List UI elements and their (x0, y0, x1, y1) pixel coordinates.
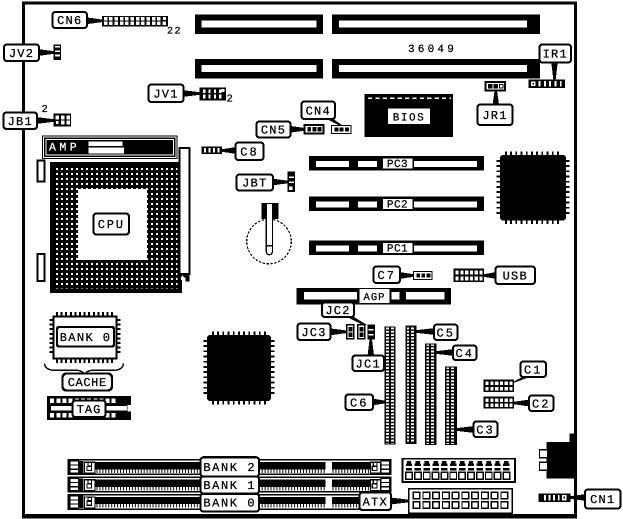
svg-text:C3: C3 (476, 423, 494, 437)
svg-text:JC1: JC1 (356, 357, 381, 371)
svg-text:2: 2 (42, 104, 48, 116)
svg-text:BANK 0: BANK 0 (60, 331, 112, 345)
svg-text:BANK 2: BANK 2 (203, 461, 256, 475)
svg-text:PC2: PC2 (387, 200, 408, 212)
svg-text:C7: C7 (378, 269, 396, 283)
svg-text:JC2: JC2 (325, 304, 350, 318)
svg-text:JBT: JBT (242, 177, 267, 191)
svg-text:PC3: PC3 (387, 159, 408, 171)
svg-text:JB1: JB1 (8, 115, 33, 129)
svg-text:CPU: CPU (98, 218, 125, 232)
svg-text:C4: C4 (456, 347, 474, 361)
svg-text:ATX: ATX (363, 495, 388, 509)
svg-text:JR1: JR1 (482, 109, 507, 123)
svg-text:AGP: AGP (364, 292, 386, 304)
svg-text:BIOS: BIOS (393, 112, 425, 124)
svg-text:IR1: IR1 (543, 48, 568, 62)
svg-text:USB: USB (503, 269, 528, 283)
svg-text:BANK 0: BANK 0 (203, 497, 256, 511)
svg-text:TAG: TAG (77, 403, 102, 417)
svg-text:AMP: AMP (49, 142, 80, 155)
svg-text:36049: 36049 (408, 44, 457, 56)
svg-text:CN1: CN1 (590, 493, 615, 507)
svg-text:C8: C8 (240, 145, 258, 159)
svg-text:CN6: CN6 (57, 14, 82, 28)
svg-text:2: 2 (227, 94, 233, 106)
svg-text:C6: C6 (350, 396, 368, 410)
svg-text:BANK 1: BANK 1 (203, 479, 256, 493)
svg-text:PC1: PC1 (387, 244, 408, 256)
svg-text:CN5: CN5 (261, 124, 286, 138)
svg-text:CN4: CN4 (306, 104, 331, 118)
svg-text:C5: C5 (437, 326, 455, 340)
svg-text:C2: C2 (532, 397, 550, 411)
svg-text:22: 22 (167, 27, 182, 38)
svg-text:CACHE: CACHE (68, 376, 107, 390)
svg-text:JC3: JC3 (301, 326, 326, 340)
svg-text:C1: C1 (524, 363, 542, 377)
svg-text:JV2: JV2 (9, 47, 34, 61)
svg-text:JV1: JV1 (153, 87, 178, 101)
